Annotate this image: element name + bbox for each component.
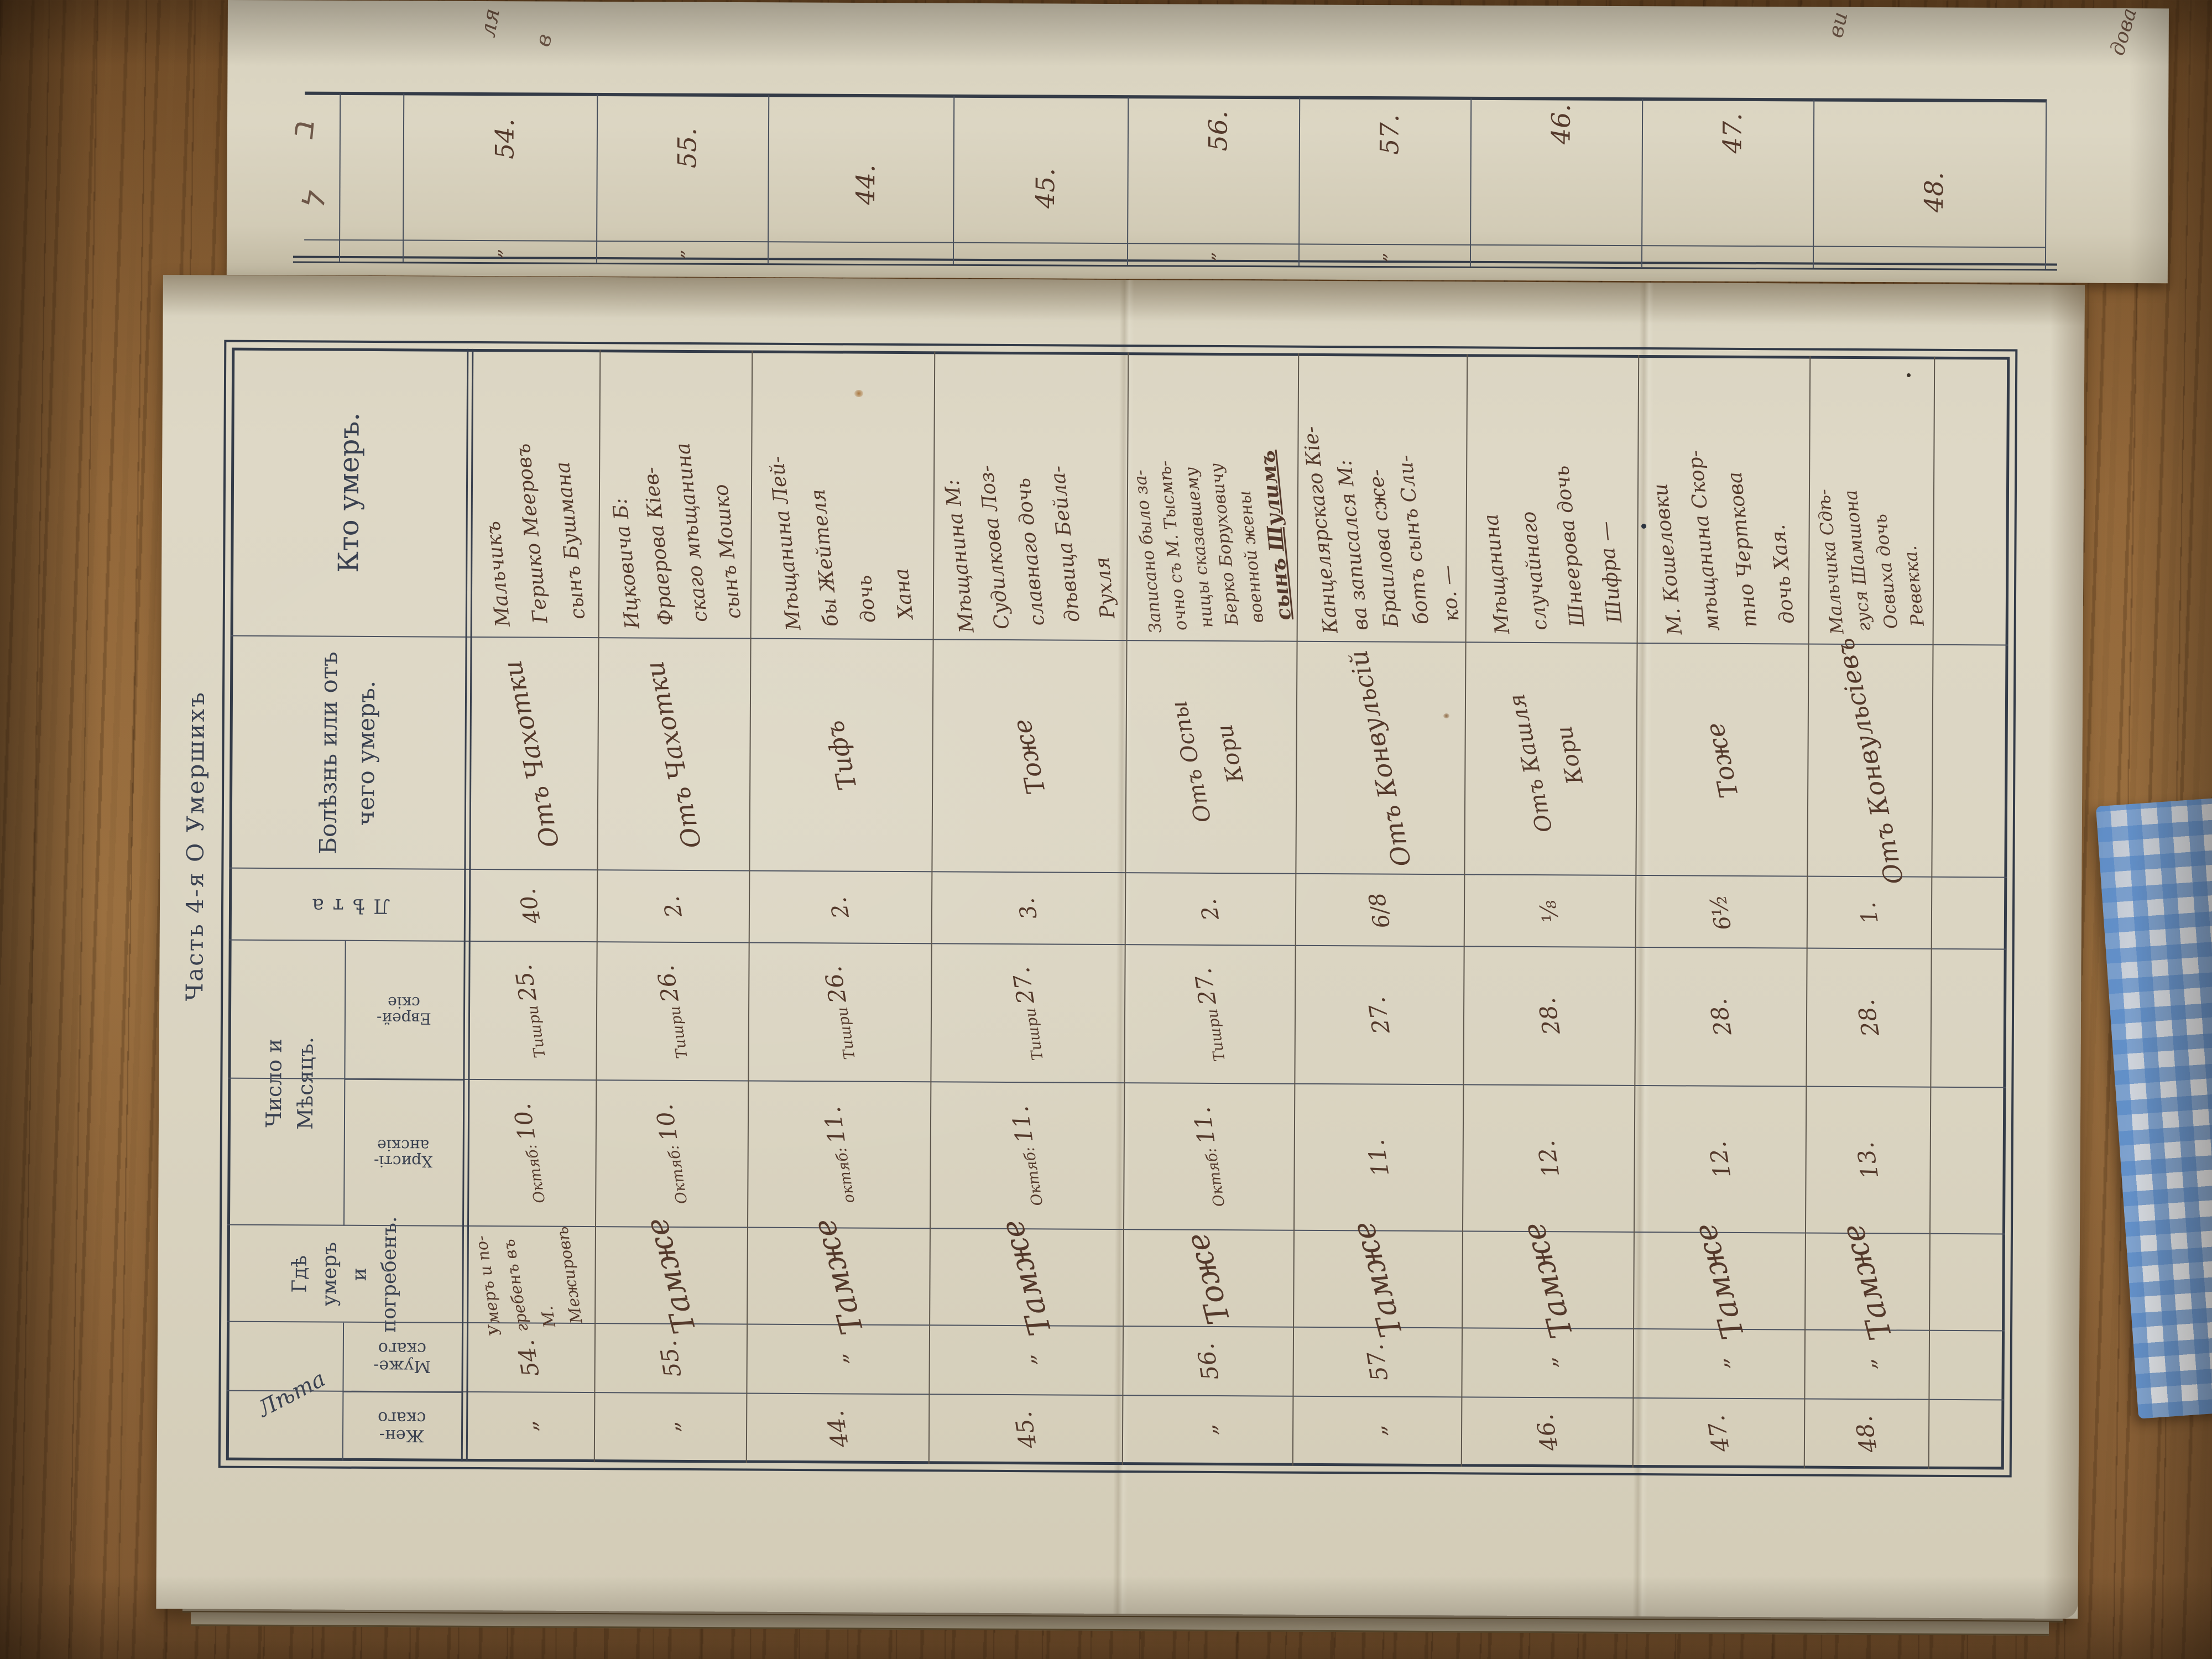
place-entry: Тамже	[1462, 1232, 1634, 1329]
place-entry: Тоже	[1123, 1230, 1293, 1328]
header-disease: Болѣзнь или отъчего умеръ.	[229, 637, 465, 870]
count-female: „	[1292, 1397, 1462, 1467]
who-died-entry: М. Кошеловкимѣщанина Скор-тно Чертковадо…	[1637, 341, 1810, 645]
top-counter-ditto: „	[666, 249, 688, 259]
top-counter-number: 48.	[1919, 172, 1949, 212]
date-christian: Октяб: 11.	[1123, 1083, 1294, 1231]
place-entry: Тамже	[594, 1227, 747, 1324]
count-female: 46.	[1461, 1397, 1633, 1468]
count-female: 44.	[746, 1394, 929, 1464]
header-count-female: Жен-скаго	[378, 1409, 426, 1444]
date-jewish: Тишри 26.	[596, 942, 748, 1081]
header-place: Гдѣ умеръи погребенъ.	[227, 1225, 462, 1323]
disease-entry: Отъ Конвульсіевъ	[1807, 645, 1932, 878]
disease-entry: Отъ Чахотки	[597, 638, 750, 871]
place-entry: Тамже	[1633, 1233, 1805, 1331]
age-entry: 2.	[1125, 873, 1296, 946]
age-entry: 40.	[464, 870, 597, 942]
paper-stain	[854, 390, 863, 397]
top-table-rule-heavy	[305, 92, 2047, 103]
disease-entry: Отъ Конвульсій	[1295, 642, 1465, 875]
age-entry: 1.	[1807, 877, 1932, 950]
script-squiggle: ל	[295, 189, 334, 213]
date-christian: 13.	[1805, 1087, 1930, 1234]
register-table: Часть 4-я О Умершихъ Лѣта Жен-скаго Муже…	[226, 348, 2010, 1470]
date-christian: Октяб: 10.	[462, 1080, 596, 1227]
part-label: Часть 4-я О Умершихъ	[181, 614, 210, 1001]
count-female: 45.	[928, 1395, 1123, 1465]
script-squiggle: ב	[282, 119, 322, 142]
date-jewish: 28.	[1463, 947, 1635, 1086]
previous-page-edge: 54.„55.„44.45.56.„57.„46.47.48. ב ל ля в…	[227, 0, 2169, 283]
ink-speck	[1641, 524, 1646, 529]
disease-entry: Тоже	[931, 640, 1126, 873]
header-age-label: Лѣта	[303, 894, 390, 916]
date-jewish: 27.	[1294, 946, 1463, 1086]
gingham-cloth	[2096, 790, 2212, 1418]
disease-entry: Отъ КашляКори	[1464, 643, 1636, 876]
header-date-christian: Христі-анскіе	[374, 1136, 432, 1169]
top-counter-number: 54.	[489, 118, 519, 159]
top-table-counter-numbers: 54.„55.„44.45.56.„57.„46.47.48.	[228, 0, 2169, 8]
top-counter-number: 44.	[850, 164, 880, 205]
who-died-entry: МѣщанинаслучайнагоШнеерова дочьШифра —	[1465, 340, 1639, 644]
header-age: Лѣта	[229, 869, 465, 942]
header-who: Кто умеръ.	[231, 348, 467, 638]
age-entry: 2.	[749, 872, 932, 945]
count-male: 54.	[461, 1323, 594, 1393]
date-christian: Октяб: 10.	[595, 1081, 748, 1228]
top-counter-ditto: „	[1368, 252, 1390, 262]
top-counter-ditto: „	[1197, 252, 1219, 262]
disease-entry: Тифъ	[749, 639, 932, 873]
top-table-rule-bottom1	[293, 256, 2057, 266]
disease-entry: Отъ ОспыКори	[1125, 641, 1296, 874]
top-counter-number: 57.	[1374, 114, 1404, 154]
header-count-male: Муже-скаго	[373, 1340, 431, 1375]
age-entry: 6/8	[1295, 874, 1464, 947]
place-entry: Умеръ и по-гребенъ въ М.Межировѣ	[462, 1227, 595, 1324]
age-entry: 6½	[1635, 876, 1807, 949]
top-counter-number: 56.	[1203, 111, 1233, 151]
top-table-columns	[228, 0, 2169, 8]
photo-of-death-register: { "palette": { "wood": "#8a6138", "paper…	[0, 0, 2212, 1659]
disease-entry: Отъ Чахотки	[464, 638, 598, 870]
header-date-group: Число иМѣсяцъ. Христі-анскіе Еврей-скіе	[227, 941, 464, 1227]
who-died-entry: Ицковича Б:Фраерова Кіев-скаго мѣщанинас…	[598, 335, 752, 639]
who-died-entry: Мѣщанина Лей-бы ЖейтелядочьХана	[750, 336, 935, 640]
place-entry: Тамже	[747, 1228, 930, 1326]
age-entry: 3.	[931, 872, 1125, 945]
who-died-entry: Записано было за-очно съ М. Тысмѣ-ницы с…	[1126, 338, 1298, 642]
place-entry: Тамже	[1293, 1231, 1462, 1329]
who-died-entry: МальчикъГершко Мееровъсынъ Бушмана	[466, 335, 600, 638]
who-died-entry: Мѣщанина М:Судилкова Лоз-славнаго дочьдѣ…	[933, 337, 1128, 641]
who-died-entry: Канцелярскаго Кіе-ва записался М:Браилов…	[1297, 339, 1467, 643]
date-christian: Октяб: 11.	[930, 1082, 1124, 1230]
date-christian: 12.	[1634, 1086, 1806, 1234]
date-christian: октяб: 11.	[747, 1082, 930, 1229]
count-male: 56.	[1122, 1327, 1293, 1397]
date-christian: 12.	[1462, 1085, 1634, 1233]
disease-entry: Тоже	[1635, 644, 1808, 877]
date-jewish: Тишри 25.	[463, 942, 596, 1081]
header-date-jewish: Еврей-скіе	[377, 994, 431, 1027]
count-female: „	[594, 1393, 747, 1463]
count-female: 47.	[1632, 1399, 1804, 1469]
age-entry: 2.	[597, 870, 749, 943]
top-counter-number: 55.	[672, 128, 702, 168]
who-died-entry: Мальчика Сдѣ-гуся ШамшонаОсвиха дочьРеве…	[1808, 342, 1934, 645]
age-entry: ⅛	[1464, 875, 1636, 948]
top-counter-number: 46.	[1546, 104, 1575, 144]
register-page: Часть 4-я О Умершихъ Лѣта Жен-скаго Муже…	[156, 275, 2085, 1619]
date-jewish: Тишри 26.	[748, 943, 931, 1083]
cutoff-writing-fragment: ля	[475, 6, 505, 39]
header-count-group-label: Лѣта	[254, 1366, 330, 1422]
date-jewish: 28.	[1806, 949, 1931, 1088]
cutoff-writing-fragment: дова	[2106, 6, 2141, 58]
count-female: 48.	[1804, 1400, 1929, 1469]
date-jewish: Тишри 27.	[1124, 945, 1295, 1084]
top-counter-number: 47.	[1717, 113, 1747, 153]
top-table-rule-mid	[304, 239, 2046, 248]
top-counter-ditto: „	[483, 248, 505, 258]
cutoff-writing-fragment: ви	[1823, 9, 1853, 40]
date-jewish: Тишри 27.	[930, 944, 1124, 1083]
ink-speck	[1907, 373, 1911, 377]
header-date-group-label: Число иМѣсяцъ.	[258, 1037, 322, 1130]
date-jewish: 28.	[1634, 948, 1806, 1087]
count-female: „	[1122, 1396, 1293, 1466]
paper-stain	[1443, 713, 1449, 718]
top-counter-number: 45.	[1030, 168, 1060, 208]
place-entry: Тамже	[929, 1229, 1123, 1327]
count-female: „	[461, 1392, 594, 1462]
place-entry: Тамже	[1804, 1234, 1929, 1331]
date-christian: 11.	[1293, 1084, 1463, 1232]
cutoff-writing-fragment: в	[530, 31, 557, 49]
